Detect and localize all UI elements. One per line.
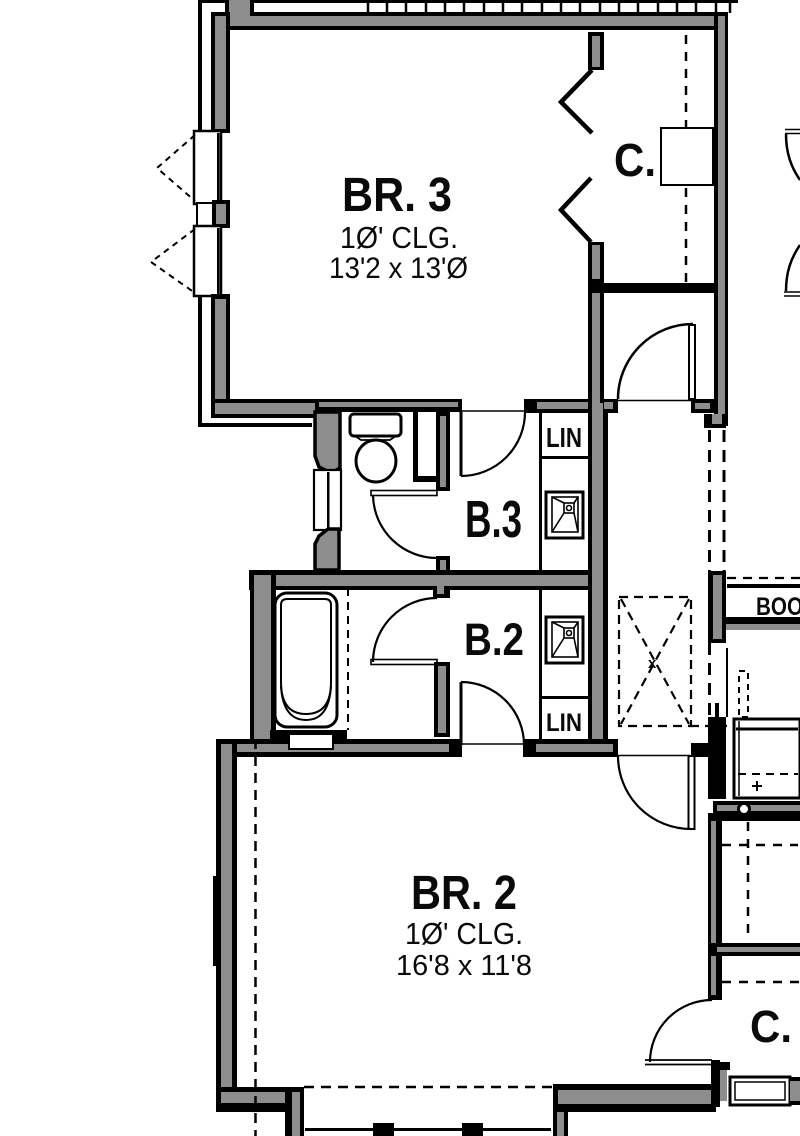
svg-text:13'2 x 13'Ø: 13'2 x 13'Ø (329, 252, 468, 285)
svg-text:1Ø' CLG.: 1Ø' CLG. (340, 220, 458, 255)
svg-text:C.: C. (614, 134, 656, 186)
svg-text:1Ø' CLG.: 1Ø' CLG. (405, 916, 523, 951)
svg-text:BR. 2: BR. 2 (411, 867, 517, 920)
svg-text:BR. 3: BR. 3 (342, 169, 452, 222)
svg-text:x: x (648, 655, 657, 672)
svg-text:LIN: LIN (546, 709, 582, 737)
svg-text:16'8 x 11'8: 16'8 x 11'8 (396, 950, 532, 982)
svg-text:C.: C. (750, 1001, 792, 1052)
svg-text:BOOK: BOOK (756, 593, 800, 621)
svg-text:LIN: LIN (546, 422, 582, 453)
svg-text:B.3: B.3 (465, 491, 522, 549)
svg-text:B.2: B.2 (464, 614, 524, 665)
